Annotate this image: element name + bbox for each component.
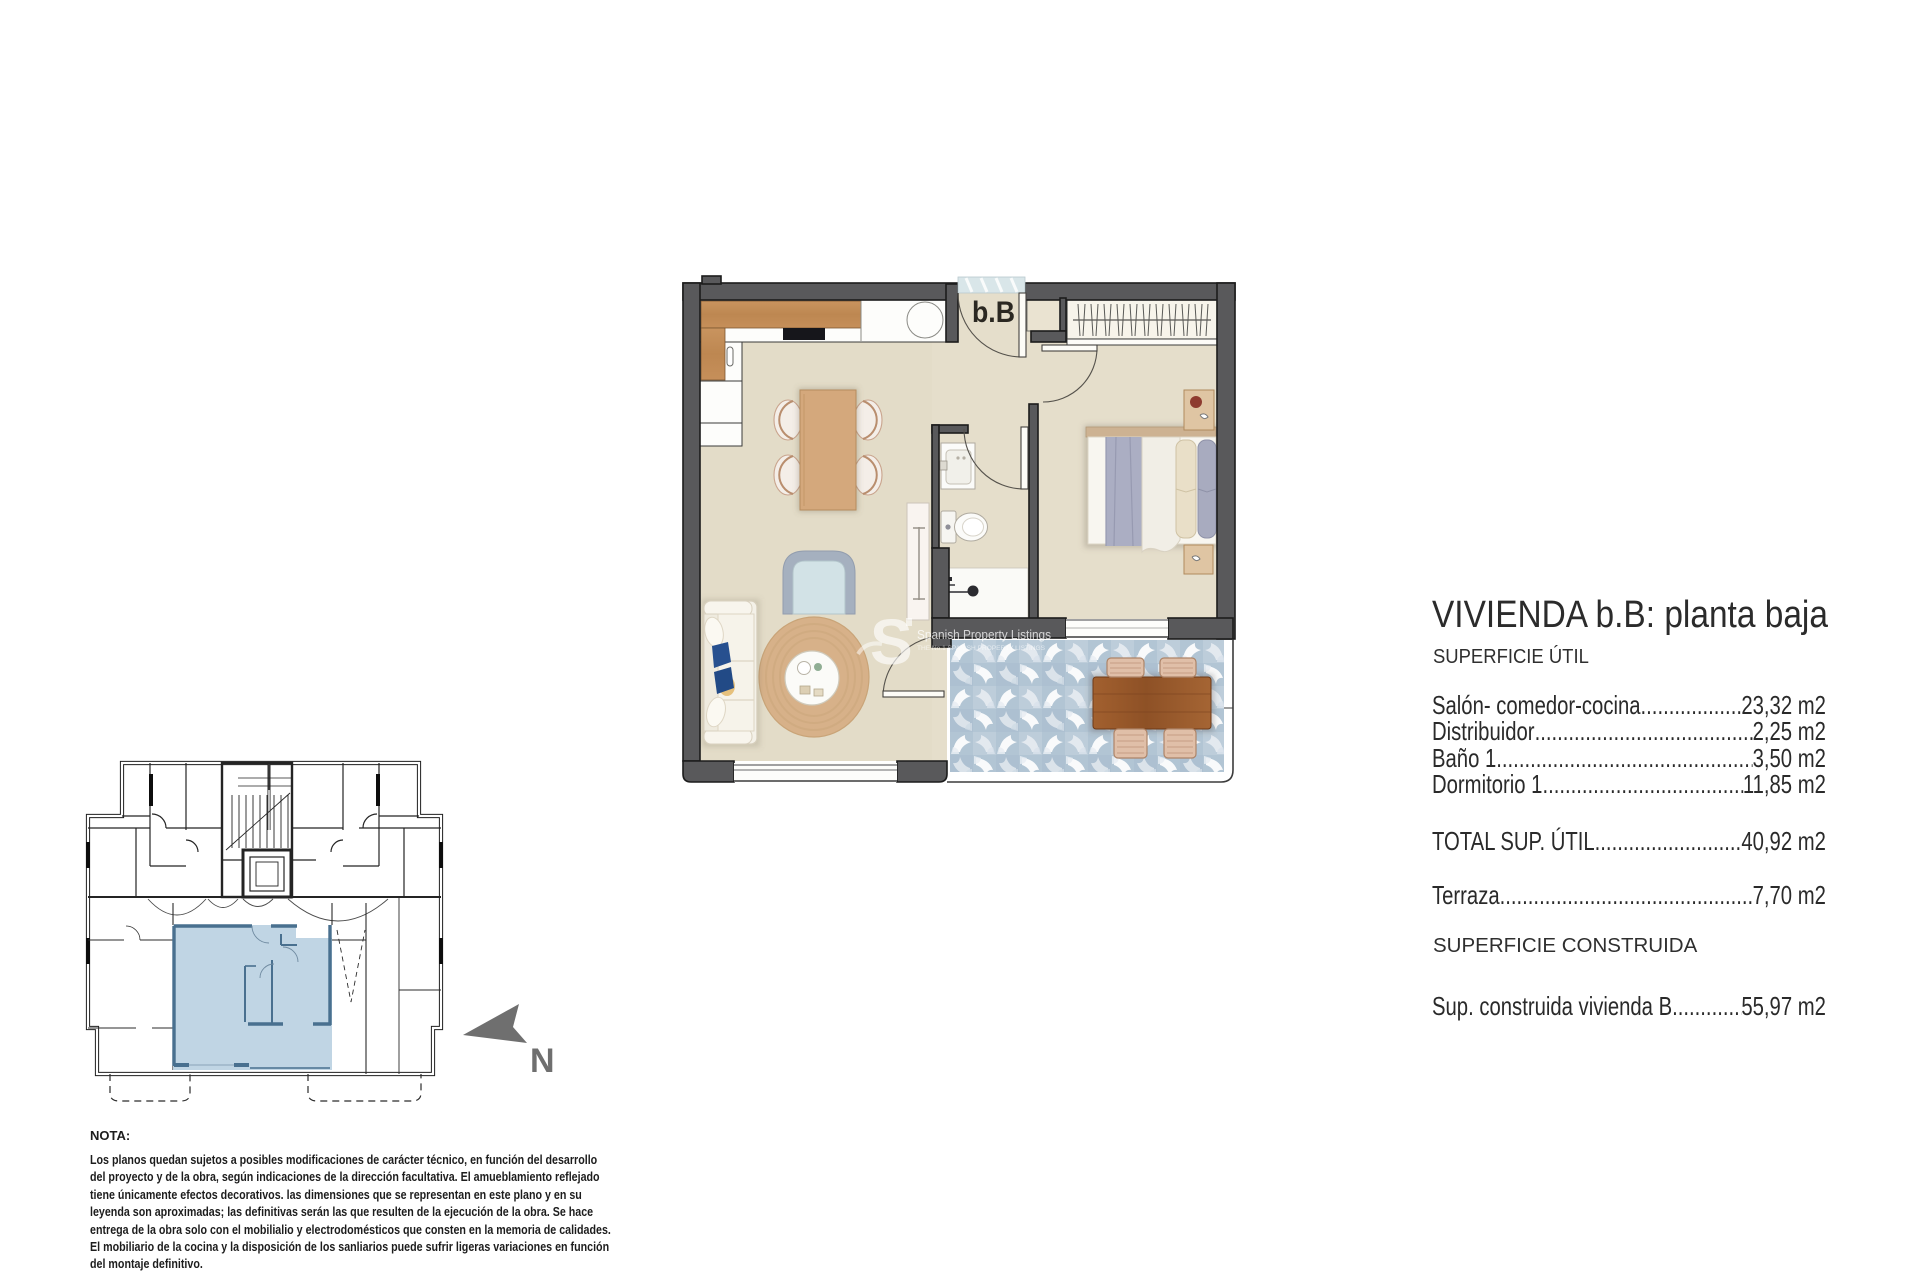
svg-text:Spanish Property Listings: Spanish Property Listings bbox=[917, 628, 1051, 642]
svg-text:b.B: b.B bbox=[972, 296, 1015, 329]
svg-text:N: N bbox=[530, 1042, 555, 1080]
svg-text:THE No.1 SPANISH PROPERTY LIST: THE No.1 SPANISH PROPERTY LISTINGS bbox=[917, 645, 1046, 652]
